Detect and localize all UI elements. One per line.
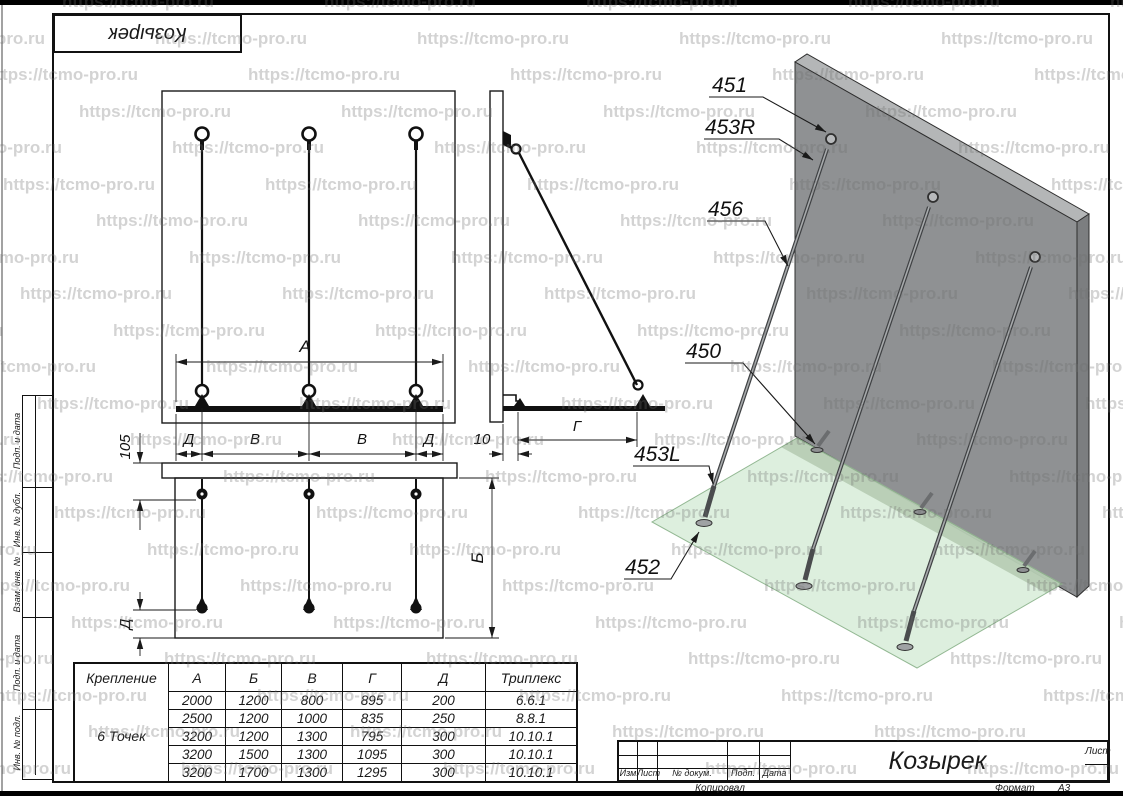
callout-456: 456 [708,198,743,221]
cell: 3200 [169,746,226,764]
callout-451: 451 [712,74,747,97]
col-header-triplex: Триплекс [486,663,578,692]
turned-title-text: Козырек [108,22,186,45]
vlabel: Инв. № дубл. [11,487,23,552]
cell: 2000 [169,692,226,710]
side-view: Г 10 [474,91,665,461]
side-dim-10 [489,424,532,461]
drawing-title: Козырек [790,742,1085,780]
dim-label-10: 10 [474,431,491,448]
callout-450: 450 [686,340,721,363]
cell: 2500 [169,710,226,728]
col-header-G: Г [343,663,402,692]
front-bottom-fittings [195,385,423,406]
side-glass-edge [503,406,665,411]
footer-format-value: А3 [1058,783,1070,794]
dim-label-105: 105 [117,434,134,460]
cell: 835 [343,710,402,728]
title-block: Изм Лист № докум. Подп. Дата Козырек Лис… [617,740,1109,782]
cell: 800 [282,692,343,710]
cell: 200 [402,692,486,710]
footer-copied: Копировал [660,783,780,794]
cell: 1200 [226,710,282,728]
side-bottom-eye [634,381,643,390]
dim-label-A: А [298,337,310,356]
vlabel: Инв. № подл. [11,710,23,775]
cell: 10.10.1 [486,746,578,764]
dim-label-V2: В [357,431,367,448]
tb-label-sheet: Лист [1085,746,1107,757]
parameters-table: Крепление А Б В Г Д Триплекс 6 Точек 200… [73,662,578,783]
vcell-vzam-inv: Взам. инв. № [23,553,52,618]
cell: 1295 [343,764,402,783]
table-header-row: Крепление А Б В Г Д Триплекс [74,663,577,692]
turned-title-stamp: Козырек [53,14,242,53]
cell: 1500 [226,746,282,764]
cell: 1095 [343,746,402,764]
tb-label-data: Дата [759,767,790,780]
tb-line [619,755,790,756]
tb-label-izm: Изм [619,767,637,780]
iso-view: 451 453R 456 450 453L 452 [624,54,1089,668]
col-header-V: В [282,663,343,692]
dim-label-D2: Д [422,431,435,448]
tb-label-list: Лист [637,767,657,780]
callout-453L: 453L [634,443,681,466]
cell: 1300 [282,764,343,783]
vlabel: Подп. и дата [11,617,23,709]
footer-format-label: Формат [995,783,1035,794]
tb-line [1085,764,1107,765]
vcell-podp-data-1: Подп. и дата [23,396,52,488]
front-glass-edge [176,406,443,412]
tb-label-dokum: № докум. [657,767,727,780]
tb-label-podp: Подп. [727,767,759,780]
iso-wall-side-face [1077,214,1089,597]
tb-sheet-cell: Лист [1085,742,1107,780]
col-header-D: Д [402,663,486,692]
vlabel: Взам. инв. № [11,552,23,617]
dim-label-D-plan: Д [117,618,134,631]
vcell-podp-data-2: Подп. и дата [23,618,52,710]
cell: 10.10.1 [486,764,578,783]
cell: 1200 [226,728,282,746]
cell: 1300 [282,728,343,746]
dim-label-D1: Д [182,431,195,448]
side-lower-bracket [503,395,521,401]
table-row: 6 Точек 2000 1200 800 895 200 6.6.1 [74,692,577,710]
vcell-inv-podl: Инв. № подл. [23,710,52,775]
side-rod [519,153,637,385]
cell: 8.8.1 [486,710,578,728]
callout-453R: 453R [705,116,755,139]
col-header-kreplenie: Крепление [74,663,169,692]
cell: 10.10.1 [486,728,578,746]
dim-label-V1: В [250,431,260,448]
front-view: А Д В В Д [162,91,455,461]
cell: 300 [402,728,486,746]
cell: 1200 [226,692,282,710]
side-top-bracket [503,131,511,149]
vcell-inv-dubl: Инв. № дубл. [23,488,52,553]
drawing-sheet: А Д В В Д [0,0,1123,796]
plan-wall-plate [162,463,457,478]
cell: 895 [343,692,402,710]
cell: 795 [343,728,402,746]
frame-left-columns: Подп. и дата Инв. № дубл. Взам. инв. № П… [22,395,53,780]
col-header-A: А [169,663,226,692]
side-top-eye [512,145,521,154]
front-dim-row [176,408,443,461]
front-top-eyebolts [196,128,423,151]
plan-view: 105 Д Б [117,433,499,656]
cell: 6.6.1 [486,692,578,710]
dim-label-B: Б [468,552,487,563]
cell: 1700 [226,764,282,783]
cell: 1000 [282,710,343,728]
group-cell: 6 Точек [74,692,169,783]
cell: 1300 [282,746,343,764]
callout-452: 452 [625,556,660,579]
plan-dim-D [133,592,196,656]
dim-label-G: Г [573,418,583,435]
side-wall-outline [490,91,503,422]
cell: 3200 [169,764,226,783]
cell: 300 [402,764,486,783]
col-header-B: Б [226,663,282,692]
cell: 3200 [169,728,226,746]
cell: 300 [402,746,486,764]
side-bottom-fitting [636,394,650,406]
cell: 250 [402,710,486,728]
vlabel: Подп. и дата [11,395,23,487]
